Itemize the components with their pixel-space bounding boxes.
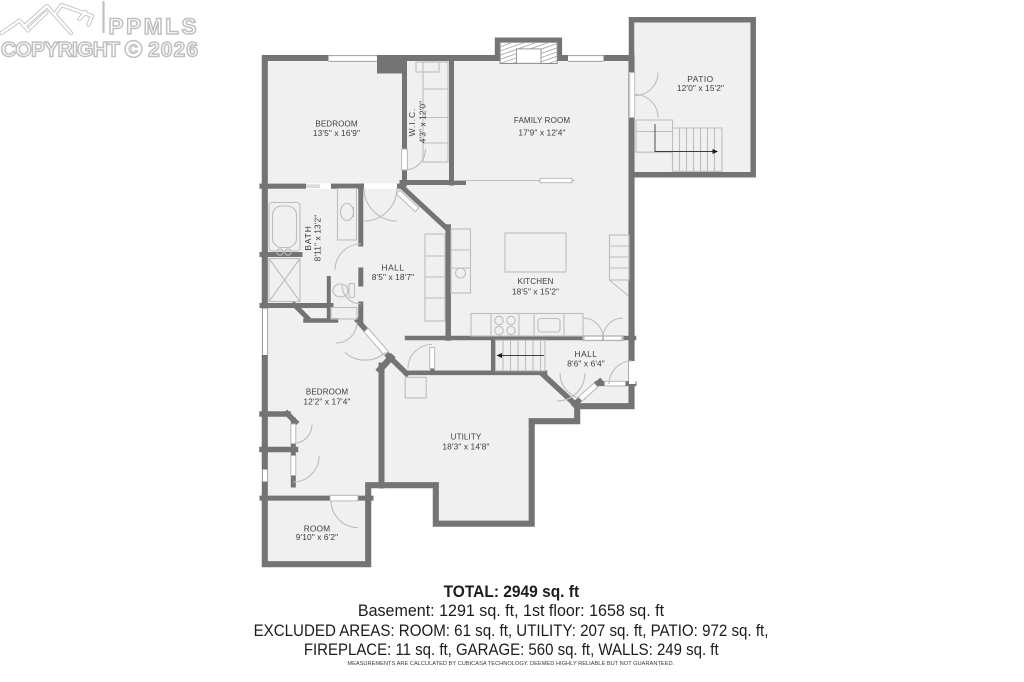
svg-text:8'6" x 6'4": 8'6" x 6'4" (567, 359, 605, 369)
svg-text:13'5" x 16'9": 13'5" x 16'9" (313, 128, 360, 138)
svg-text:HALL: HALL (382, 263, 405, 273)
svg-text:18'3" x 14'8": 18'3" x 14'8" (442, 441, 489, 451)
svg-text:2026: 2026 (148, 39, 198, 62)
svg-text:UTILITY: UTILITY (451, 433, 482, 442)
svg-text:COPYRIGHT: COPYRIGHT (1, 39, 120, 62)
svg-text:BEDROOM: BEDROOM (306, 387, 348, 396)
svg-text:8'5" x 18'7": 8'5" x 18'7" (372, 272, 414, 282)
svg-text:BATH: BATH (303, 225, 313, 250)
svg-text:9'10" x 6'2": 9'10" x 6'2" (296, 532, 338, 542)
svg-text:12'2" x 17'4": 12'2" x 17'4" (303, 396, 350, 406)
svg-text:C: C (129, 42, 139, 57)
svg-text:PPMLS: PPMLS (109, 14, 197, 39)
svg-text:17'9" x 12'4": 17'9" x 12'4" (518, 128, 565, 138)
svg-text:W.I.C.: W.I.C. (407, 108, 417, 137)
svg-text:8'11" x 13'2": 8'11" x 13'2" (313, 215, 323, 262)
svg-text:KITCHEN: KITCHEN (517, 277, 553, 286)
svg-text:FAMILY ROOM: FAMILY ROOM (514, 116, 570, 125)
svg-text:4'3" x 12'0": 4'3" x 12'0" (418, 101, 428, 143)
svg-text:12'0" x 15'2": 12'0" x 15'2" (677, 83, 724, 93)
svg-text:18'5" x 15'2": 18'5" x 15'2" (512, 287, 559, 297)
